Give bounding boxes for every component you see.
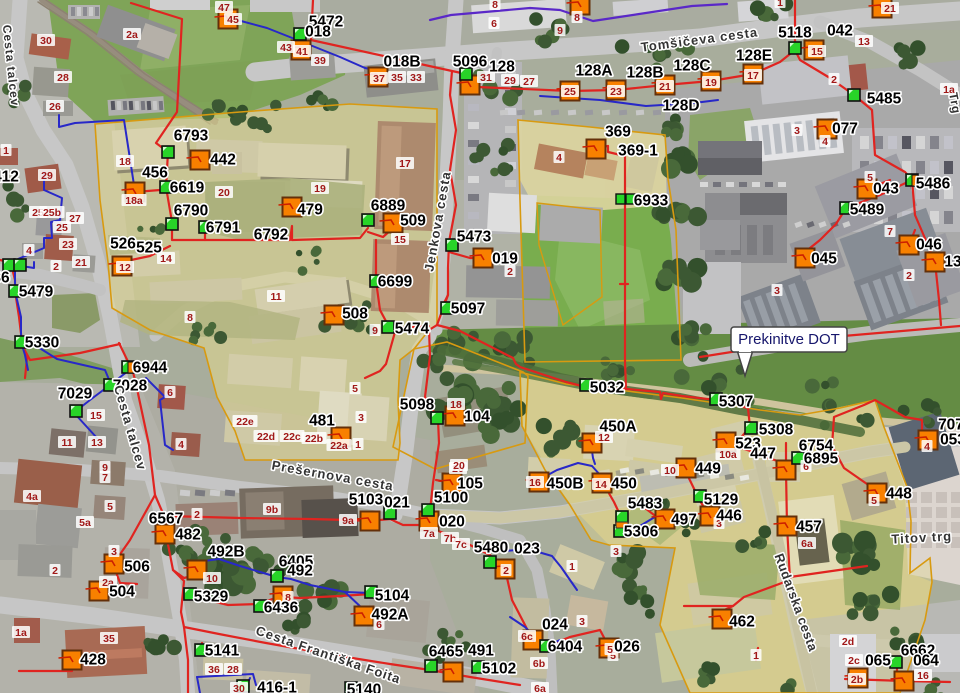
svg-text:5474: 5474 <box>395 321 430 338</box>
svg-text:18: 18 <box>450 399 462 411</box>
svg-text:9a: 9a <box>342 515 354 527</box>
svg-text:43: 43 <box>280 42 292 54</box>
svg-text:4: 4 <box>556 152 562 164</box>
svg-text:17: 17 <box>747 70 759 82</box>
svg-text:5479: 5479 <box>19 284 54 301</box>
svg-text:1: 1 <box>777 0 783 9</box>
svg-text:11: 11 <box>270 291 281 303</box>
svg-text:35: 35 <box>103 633 115 645</box>
svg-text:7029: 7029 <box>58 386 93 403</box>
svg-text:412: 412 <box>0 169 19 186</box>
svg-text:5103: 5103 <box>349 492 384 509</box>
svg-text:508: 508 <box>342 306 368 323</box>
svg-text:13: 13 <box>944 254 960 271</box>
svg-text:5: 5 <box>607 644 613 656</box>
svg-text:492A: 492A <box>371 607 408 624</box>
svg-text:3: 3 <box>358 412 364 424</box>
svg-text:481: 481 <box>309 413 335 430</box>
svg-text:064: 064 <box>913 653 939 670</box>
svg-text:15: 15 <box>90 410 102 422</box>
svg-text:5096: 5096 <box>453 54 488 71</box>
svg-text:8: 8 <box>187 312 193 324</box>
svg-text:1a: 1a <box>15 627 27 639</box>
svg-text:5485: 5485 <box>867 91 902 108</box>
svg-text:021: 021 <box>384 495 410 512</box>
svg-text:22a: 22a <box>330 440 348 452</box>
svg-text:026: 026 <box>614 639 640 656</box>
svg-text:104: 104 <box>464 409 490 426</box>
svg-text:2: 2 <box>503 565 509 577</box>
svg-text:8: 8 <box>574 12 580 24</box>
svg-text:13: 13 <box>91 437 103 449</box>
svg-text:25b: 25b <box>43 207 61 219</box>
svg-text:504: 504 <box>109 584 135 601</box>
svg-text:29: 29 <box>504 75 516 87</box>
svg-text:9b: 9b <box>266 504 278 516</box>
svg-text:15: 15 <box>394 234 406 246</box>
svg-text:5140: 5140 <box>347 682 381 693</box>
svg-text:449: 449 <box>695 461 721 478</box>
svg-text:12: 12 <box>119 262 131 274</box>
svg-text:5032: 5032 <box>590 380 624 397</box>
svg-text:2: 2 <box>831 74 837 86</box>
svg-text:5104: 5104 <box>375 588 410 605</box>
svg-text:10: 10 <box>206 573 218 585</box>
svg-text:525: 525 <box>136 240 162 257</box>
svg-text:447: 447 <box>750 446 776 463</box>
svg-text:6793: 6793 <box>174 128 209 145</box>
svg-text:22b: 22b <box>305 433 323 445</box>
svg-text:11: 11 <box>61 437 72 449</box>
svg-text:6a: 6a <box>801 538 813 550</box>
svg-text:30: 30 <box>40 35 52 47</box>
svg-text:3: 3 <box>794 125 800 137</box>
svg-text:22c: 22c <box>283 431 301 443</box>
svg-text:10: 10 <box>664 465 676 477</box>
svg-text:6a: 6a <box>534 683 546 693</box>
svg-text:6791: 6791 <box>206 220 241 237</box>
svg-text:065: 065 <box>865 653 891 670</box>
svg-text:19: 19 <box>314 183 326 195</box>
svg-text:482: 482 <box>175 527 201 544</box>
svg-text:5330: 5330 <box>25 335 59 352</box>
svg-text:024: 024 <box>542 617 568 634</box>
svg-text:2: 2 <box>194 509 200 521</box>
svg-text:497: 497 <box>671 512 697 529</box>
svg-text:9: 9 <box>372 325 378 337</box>
svg-text:47: 47 <box>218 2 230 14</box>
svg-text:6c: 6c <box>521 631 533 643</box>
svg-text:2: 2 <box>52 565 58 577</box>
svg-text:416-1: 416-1 <box>257 680 297 693</box>
svg-text:446: 446 <box>716 508 742 525</box>
svg-text:5: 5 <box>352 383 358 395</box>
svg-text:5306: 5306 <box>624 524 659 541</box>
svg-text:019: 019 <box>492 251 518 268</box>
svg-text:5102: 5102 <box>482 661 516 678</box>
svg-text:5473: 5473 <box>457 229 492 246</box>
svg-text:5307: 5307 <box>719 394 753 411</box>
svg-text:1: 1 <box>569 561 575 573</box>
svg-text:5489: 5489 <box>850 202 885 219</box>
svg-text:6792: 6792 <box>254 227 288 244</box>
svg-text:2: 2 <box>906 270 912 282</box>
svg-text:128: 128 <box>489 59 515 76</box>
svg-text:6944: 6944 <box>133 360 168 377</box>
svg-text:21: 21 <box>659 81 671 93</box>
svg-text:128E: 128E <box>736 48 772 65</box>
svg-text:018: 018 <box>305 24 331 41</box>
svg-text:4: 4 <box>822 136 828 148</box>
svg-text:491: 491 <box>468 643 494 660</box>
svg-text:5329: 5329 <box>194 589 229 606</box>
svg-text:1: 1 <box>753 650 759 662</box>
svg-text:369: 369 <box>605 124 631 141</box>
svg-text:18: 18 <box>119 156 131 168</box>
svg-text:1: 1 <box>3 145 9 157</box>
svg-text:23: 23 <box>62 239 74 251</box>
svg-text:6619: 6619 <box>170 180 205 197</box>
svg-text:448: 448 <box>886 486 912 503</box>
svg-text:35: 35 <box>391 72 403 84</box>
svg-text:5129: 5129 <box>704 492 739 509</box>
svg-text:22e: 22e <box>236 416 254 428</box>
svg-text:6895: 6895 <box>804 451 839 468</box>
svg-text:25: 25 <box>564 86 576 98</box>
svg-text:6436: 6436 <box>264 600 299 617</box>
svg-text:6933: 6933 <box>634 193 669 210</box>
svg-text:506: 506 <box>124 559 150 576</box>
svg-text:3: 3 <box>579 616 585 628</box>
svg-text:2: 2 <box>53 261 59 273</box>
svg-text:Prekinitve DOT: Prekinitve DOT <box>738 331 840 348</box>
svg-text:509: 509 <box>400 213 426 230</box>
svg-text:042: 042 <box>827 23 853 40</box>
svg-text:479: 479 <box>297 202 323 219</box>
svg-text:21: 21 <box>75 257 87 269</box>
svg-text:5486: 5486 <box>916 176 951 193</box>
svg-text:39: 39 <box>314 55 326 67</box>
svg-text:7a: 7a <box>423 528 435 540</box>
svg-text:7: 7 <box>102 472 108 484</box>
svg-text:7c: 7c <box>455 539 467 551</box>
svg-text:4a: 4a <box>26 491 38 503</box>
svg-text:20: 20 <box>218 187 230 199</box>
svg-text:6: 6 <box>491 18 497 30</box>
svg-text:9: 9 <box>557 25 563 37</box>
svg-text:25: 25 <box>56 222 68 234</box>
svg-text:128B: 128B <box>626 65 663 82</box>
svg-text:128C: 128C <box>673 58 710 75</box>
svg-text:6b: 6b <box>533 658 545 670</box>
svg-text:6: 6 <box>167 387 173 399</box>
svg-text:15: 15 <box>811 46 823 58</box>
svg-text:22d: 22d <box>257 431 275 443</box>
svg-text:5480: 5480 <box>474 540 508 557</box>
svg-text:20: 20 <box>453 460 465 472</box>
svg-text:018B: 018B <box>383 54 420 71</box>
svg-text:5118: 5118 <box>778 25 812 42</box>
svg-text:2a: 2a <box>126 29 138 41</box>
svg-text:17: 17 <box>399 158 411 170</box>
svg-text:450: 450 <box>611 476 637 493</box>
svg-text:6404: 6404 <box>548 639 583 656</box>
svg-text:1: 1 <box>355 439 361 451</box>
svg-text:428: 428 <box>80 652 106 669</box>
svg-text:28: 28 <box>227 664 239 676</box>
svg-text:33: 33 <box>410 72 422 84</box>
svg-text:2c: 2c <box>848 655 860 667</box>
svg-text:5097: 5097 <box>451 301 485 318</box>
svg-text:4: 4 <box>26 245 32 257</box>
svg-text:043: 043 <box>873 181 899 198</box>
svg-text:21: 21 <box>884 3 896 15</box>
svg-text:450B: 450B <box>546 476 583 493</box>
svg-text:16: 16 <box>917 670 929 682</box>
svg-text:456: 456 <box>142 165 168 182</box>
svg-text:Titov trg: Titov trg <box>891 528 952 546</box>
svg-text:6790: 6790 <box>174 203 208 220</box>
svg-text:053: 053 <box>940 432 960 449</box>
svg-text:5: 5 <box>871 495 877 507</box>
svg-text:36: 36 <box>208 664 220 676</box>
svg-text:6465: 6465 <box>429 644 464 661</box>
svg-text:26: 26 <box>49 101 61 113</box>
svg-text:45: 45 <box>227 14 239 26</box>
svg-text:3: 3 <box>111 546 117 558</box>
svg-text:3: 3 <box>774 285 780 297</box>
svg-text:2: 2 <box>507 266 513 278</box>
svg-text:36: 36 <box>0 270 10 287</box>
svg-text:18a: 18a <box>125 195 143 207</box>
svg-text:13: 13 <box>858 36 870 48</box>
svg-text:16: 16 <box>529 477 541 489</box>
svg-text:526: 526 <box>110 236 136 253</box>
svg-text:5141: 5141 <box>205 643 240 660</box>
svg-text:128A: 128A <box>575 63 612 80</box>
svg-text:6567: 6567 <box>149 511 183 528</box>
svg-text:7: 7 <box>887 226 893 238</box>
svg-text:6699: 6699 <box>378 274 413 291</box>
svg-text:5a: 5a <box>79 517 91 529</box>
svg-text:29: 29 <box>41 170 53 182</box>
svg-text:5483: 5483 <box>628 496 663 513</box>
svg-text:37: 37 <box>373 73 385 85</box>
svg-text:450A: 450A <box>599 419 636 436</box>
svg-text:8: 8 <box>492 0 498 11</box>
svg-text:442: 442 <box>210 152 236 169</box>
svg-text:3: 3 <box>613 546 619 558</box>
svg-text:41: 41 <box>296 46 308 58</box>
svg-text:30: 30 <box>233 683 245 693</box>
svg-text:5: 5 <box>107 501 113 513</box>
svg-text:369-1: 369-1 <box>618 143 658 160</box>
svg-text:462: 462 <box>729 614 755 631</box>
svg-text:19: 19 <box>705 77 717 89</box>
svg-text:4: 4 <box>178 439 184 451</box>
svg-text:457: 457 <box>796 519 822 536</box>
svg-text:23: 23 <box>610 86 622 98</box>
svg-text:023: 023 <box>514 541 540 558</box>
svg-text:2b: 2b <box>851 674 863 686</box>
svg-text:020: 020 <box>439 514 465 531</box>
svg-text:4: 4 <box>924 441 930 453</box>
svg-text:5100: 5100 <box>434 490 468 507</box>
svg-text:045: 045 <box>811 251 837 268</box>
svg-text:2d: 2d <box>842 636 854 648</box>
svg-text:128D: 128D <box>662 98 699 115</box>
svg-text:077: 077 <box>832 121 858 138</box>
svg-text:046: 046 <box>916 237 942 254</box>
svg-text:5308: 5308 <box>759 422 794 439</box>
svg-text:27: 27 <box>523 76 535 88</box>
svg-text:492: 492 <box>287 563 313 580</box>
svg-text:28: 28 <box>57 72 69 84</box>
svg-text:14: 14 <box>595 479 607 491</box>
svg-text:492B: 492B <box>207 544 244 561</box>
svg-text:5098: 5098 <box>400 397 435 414</box>
